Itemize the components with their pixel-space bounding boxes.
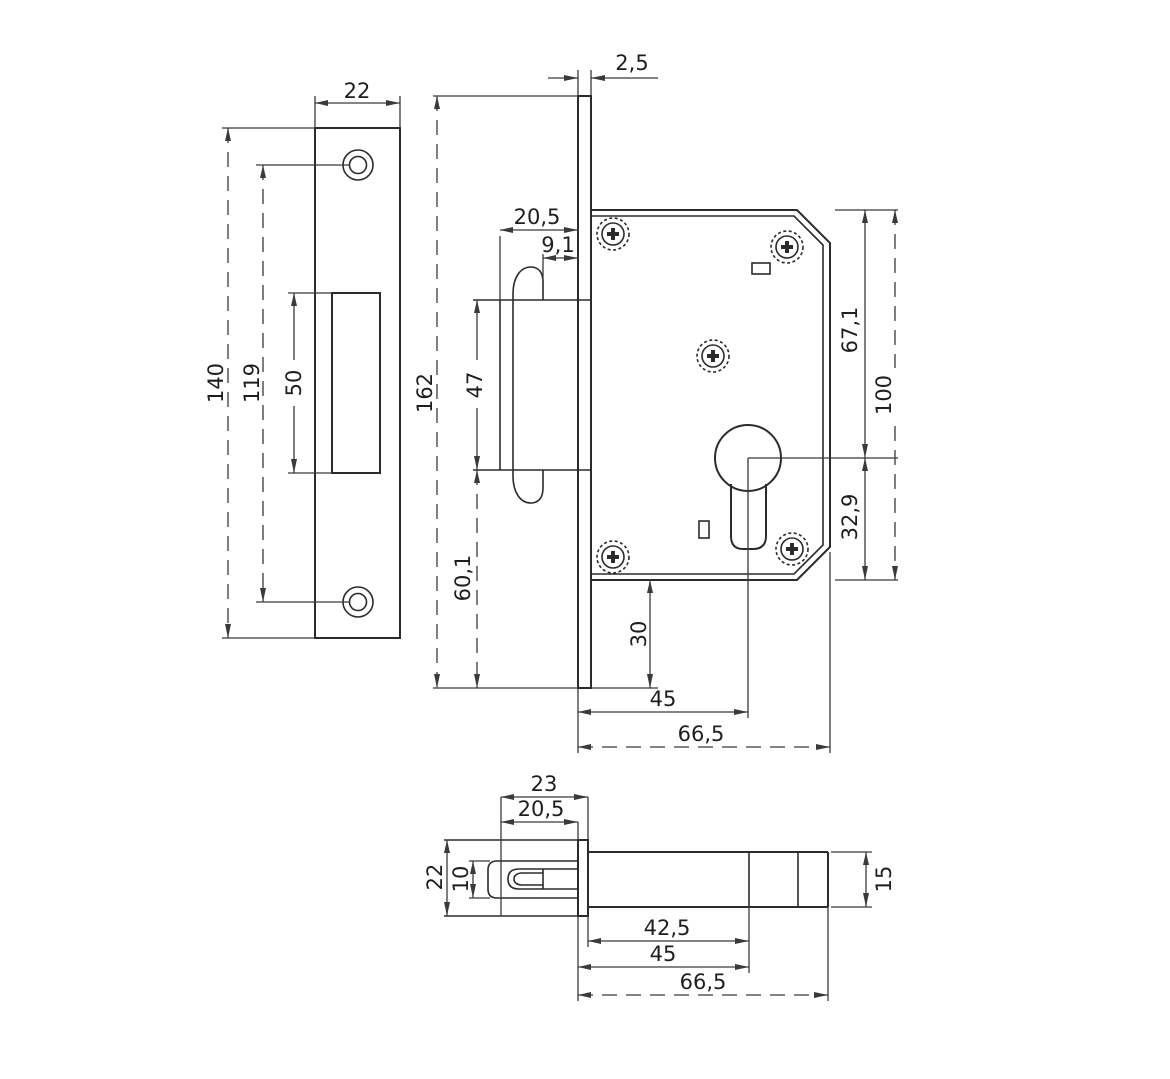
dim-plate-width-plan: 22 bbox=[423, 840, 447, 916]
screw-icon bbox=[597, 218, 629, 250]
dim-bolt-opening-label: 47 bbox=[463, 372, 487, 399]
dim-case-depth-plan: 66,5 bbox=[578, 907, 828, 1001]
dim-strike-plate-height-label: 140 bbox=[204, 363, 228, 403]
lock-case-outline bbox=[591, 210, 830, 580]
dim-bolt-protrusion-incl-plate-label: 23 bbox=[531, 772, 558, 796]
screw-icon bbox=[697, 340, 729, 372]
dim-strike-cutout-height: 50 bbox=[282, 293, 332, 473]
faceplate-plan bbox=[578, 840, 588, 916]
dim-bolt-protrusion-plan: 20,5 bbox=[501, 797, 578, 840]
dim-cylinder-to-case-bottom: 32,9 bbox=[838, 458, 865, 580]
dim-bolt-thickness: 10 bbox=[449, 861, 490, 898]
dim-plate-back-to-cylinder-label: 42,5 bbox=[644, 916, 691, 940]
technical-drawing-page: 22 140 119 50 bbox=[0, 0, 1170, 1079]
dim-faceplate-thickness: 2,5 bbox=[548, 51, 658, 96]
dim-strike-hole-spacing-label: 119 bbox=[240, 363, 264, 403]
dim-strike-plate-width-label: 22 bbox=[344, 79, 371, 103]
dim-plate-width-plan-label: 22 bbox=[423, 864, 447, 891]
dim-case-top-to-cylinder-label: 67,1 bbox=[838, 307, 862, 354]
dim-faceplate-height: 162 bbox=[413, 96, 578, 688]
dim-case-top-to-cylinder: 67,1 bbox=[838, 210, 865, 458]
dim-case-depth-side-label: 66,5 bbox=[678, 722, 725, 746]
dim-bolt-protrusion-incl-plate: 23 bbox=[501, 772, 588, 916]
dim-faceplate-height-label: 162 bbox=[413, 373, 437, 413]
lock-case-plan bbox=[588, 852, 828, 907]
dim-bolt-thickness-label: 10 bbox=[449, 866, 473, 893]
dim-strike-cutout-height-label: 50 bbox=[282, 370, 306, 397]
hook-bolt-plan bbox=[508, 869, 578, 889]
dim-faceplate-thickness-label: 2,5 bbox=[615, 51, 648, 75]
dim-case-thickness: 15 bbox=[831, 852, 896, 907]
dim-bolt-to-plate-end: 60,1 bbox=[451, 470, 477, 688]
lock-technical-drawing: 22 140 119 50 bbox=[0, 0, 1170, 1079]
hook-bolt-side bbox=[473, 267, 591, 503]
screw-icon bbox=[776, 533, 808, 565]
dim-case-to-plate-end: 30 bbox=[591, 580, 658, 688]
lock-side-view: 2,5 162 20,5 9,1 bbox=[413, 51, 906, 753]
dim-case-depth-plan-label: 66,5 bbox=[680, 970, 727, 994]
dim-bolt-tip-label: 9,1 bbox=[541, 233, 574, 257]
strike-plate-view: 22 140 119 50 bbox=[204, 79, 400, 638]
dim-bolt-opening: 47 bbox=[463, 300, 488, 470]
case-slot-top bbox=[752, 263, 770, 274]
dim-bolt-protrusion-plan-label: 20,5 bbox=[518, 797, 565, 821]
strike-plate-cutout bbox=[332, 293, 380, 473]
dim-strike-plate-width: 22 bbox=[315, 79, 400, 128]
strike-plate-outline bbox=[315, 128, 400, 638]
dim-bolt-protrusion-label: 20,5 bbox=[514, 205, 561, 229]
dim-case-height-label: 100 bbox=[872, 375, 896, 415]
dim-case-thickness-label: 15 bbox=[872, 866, 896, 893]
dim-bolt-to-plate-end-label: 60,1 bbox=[451, 555, 475, 602]
lock-plan-view: 23 20,5 22 10 15 bbox=[423, 772, 896, 1001]
lock-case-side bbox=[591, 210, 830, 580]
dim-backset-plan-label: 45 bbox=[650, 942, 677, 966]
faceplate-outline bbox=[578, 96, 591, 688]
case-slot-bottom bbox=[699, 521, 709, 538]
dim-case-depth-side: 66,5 bbox=[578, 552, 830, 753]
screw-icon bbox=[771, 231, 803, 263]
bolt-hook-top bbox=[513, 267, 543, 300]
dim-case-height: 100 bbox=[872, 210, 906, 580]
bolt-hook-bottom bbox=[513, 470, 543, 503]
screw-icon bbox=[597, 541, 629, 573]
dim-cylinder-to-case-bottom-label: 32,9 bbox=[838, 494, 862, 541]
dim-bolt-tip: 9,1 bbox=[541, 233, 578, 282]
dim-backset-side-label: 45 bbox=[650, 687, 677, 711]
dim-case-to-plate-end-label: 30 bbox=[627, 621, 651, 648]
